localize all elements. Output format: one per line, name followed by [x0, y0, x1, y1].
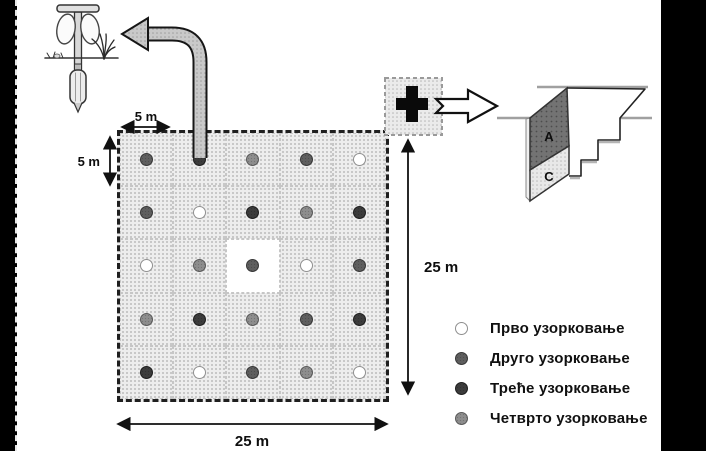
- grid-cell-r1-c1: [120, 133, 173, 186]
- legend-label: Прво узорковање: [490, 320, 625, 337]
- soil-profile: A C: [497, 87, 652, 201]
- legend-dot-icon: [455, 322, 468, 335]
- grid-cell-r3-c1: [120, 239, 173, 292]
- sample-point-round-1: [140, 259, 153, 272]
- legend-dot-icon: [455, 412, 468, 425]
- grid-cell-r4-c4: [280, 293, 333, 346]
- grid-cell-r5-c1: [120, 346, 173, 399]
- legend-label: Друго узорковање: [490, 350, 630, 367]
- sample-point-round-4: [193, 259, 206, 272]
- grid-cell-r2-c3: [226, 186, 279, 239]
- grid-cell-r1-c4: [280, 133, 333, 186]
- grid-cell-r2-c4: [280, 186, 333, 239]
- grid-cell-r5-c4: [280, 346, 333, 399]
- sample-point-round-1: [353, 153, 366, 166]
- soil-auger-icon: [45, 5, 118, 112]
- grid-cell-r2-c1: [120, 186, 173, 239]
- legend-dot-icon: [455, 382, 468, 395]
- sample-point-round-2: [246, 366, 259, 379]
- sample-point-round-4: [246, 313, 259, 326]
- horizon-a-label: A: [544, 129, 554, 144]
- sample-point-round-2: [353, 259, 366, 272]
- dim-cell-height: 5 m: [78, 137, 110, 185]
- cell-width-label: 5 m: [135, 109, 157, 124]
- grid-cell-r1-c5: [333, 133, 386, 186]
- composite-sample-cell: [385, 78, 442, 135]
- legend-label: Треће узорковање: [490, 380, 630, 397]
- horizon-c-label: C: [544, 169, 554, 184]
- grid-cell-r2-c2: [173, 186, 226, 239]
- grid-cell-r5-c2: [173, 346, 226, 399]
- grid-cell-r4-c3: [226, 293, 279, 346]
- dim-grid-width: 25 m: [118, 424, 387, 450]
- left-black-bar: [0, 0, 17, 451]
- legend: Прво узорковањеДруго узорковањеТреће узо…: [455, 313, 648, 433]
- dim-grid-height: 25 m: [408, 140, 458, 394]
- legend-label: Четврто узорковање: [490, 410, 648, 427]
- grid-cell-r5-c3: [226, 346, 279, 399]
- sample-point-round-4: [246, 153, 259, 166]
- sample-point-round-2: [300, 153, 313, 166]
- legend-item-round-2: Друго узорковање: [455, 343, 648, 373]
- grid-cell-r2-c5: [333, 186, 386, 239]
- sample-point-round-2: [140, 153, 153, 166]
- grid-cell-r5-c5: [333, 346, 386, 399]
- sample-point-round-2: [300, 313, 313, 326]
- figure-canvas: Прво узорковањеДруго узорковањеТреће узо…: [0, 0, 706, 451]
- plus-cross-icon: [396, 86, 428, 122]
- sample-point-round-3: [246, 206, 259, 219]
- legend-item-round-4: Четврто узорковање: [455, 403, 648, 433]
- sample-point-round-3: [193, 313, 206, 326]
- grid-cell-r4-c2: [173, 293, 226, 346]
- dim-cell-width: 5 m: [122, 109, 169, 127]
- sample-point-round-2: [140, 206, 153, 219]
- sample-point-round-4: [300, 206, 313, 219]
- grid-width-label: 25 m: [235, 433, 269, 450]
- cell-height-label: 5 m: [78, 154, 100, 169]
- sample-point-round-3: [140, 366, 153, 379]
- grid-height-label: 25 m: [424, 259, 458, 276]
- sample-point-round-1: [193, 366, 206, 379]
- sample-point-round-3: [193, 153, 206, 166]
- sample-point-round-1: [193, 206, 206, 219]
- grid-cell-r3-c4: [280, 239, 333, 292]
- grid-cell-r3-c5: [333, 239, 386, 292]
- sample-point-round-4: [300, 366, 313, 379]
- grid-cell-r4-c5: [333, 293, 386, 346]
- legend-dot-icon: [455, 352, 468, 365]
- grid-cell-r1-c3: [226, 133, 279, 186]
- plant-icon: [92, 34, 115, 59]
- right-black-bar: [661, 0, 706, 451]
- legend-item-round-3: Треће узорковање: [455, 373, 648, 403]
- sample-point-round-2: [246, 259, 259, 272]
- sample-point-round-1: [300, 259, 313, 272]
- sample-point-round-3: [353, 206, 366, 219]
- grid-cell-r4-c1: [120, 293, 173, 346]
- sample-point-round-4: [140, 313, 153, 326]
- grid-cell-r1-c2: [173, 133, 226, 186]
- grid-cell-r3-c2: [173, 239, 226, 292]
- horizon-a-face: [530, 88, 569, 170]
- grid-cell-r3-c3: [226, 239, 279, 292]
- sample-point-round-1: [353, 366, 366, 379]
- block-arrow-right-icon: [436, 90, 497, 122]
- sample-point-round-3: [353, 313, 366, 326]
- sampling-grid: [117, 130, 389, 402]
- horizon-c-face: [530, 146, 569, 201]
- legend-item-round-1: Прво узорковање: [455, 313, 648, 343]
